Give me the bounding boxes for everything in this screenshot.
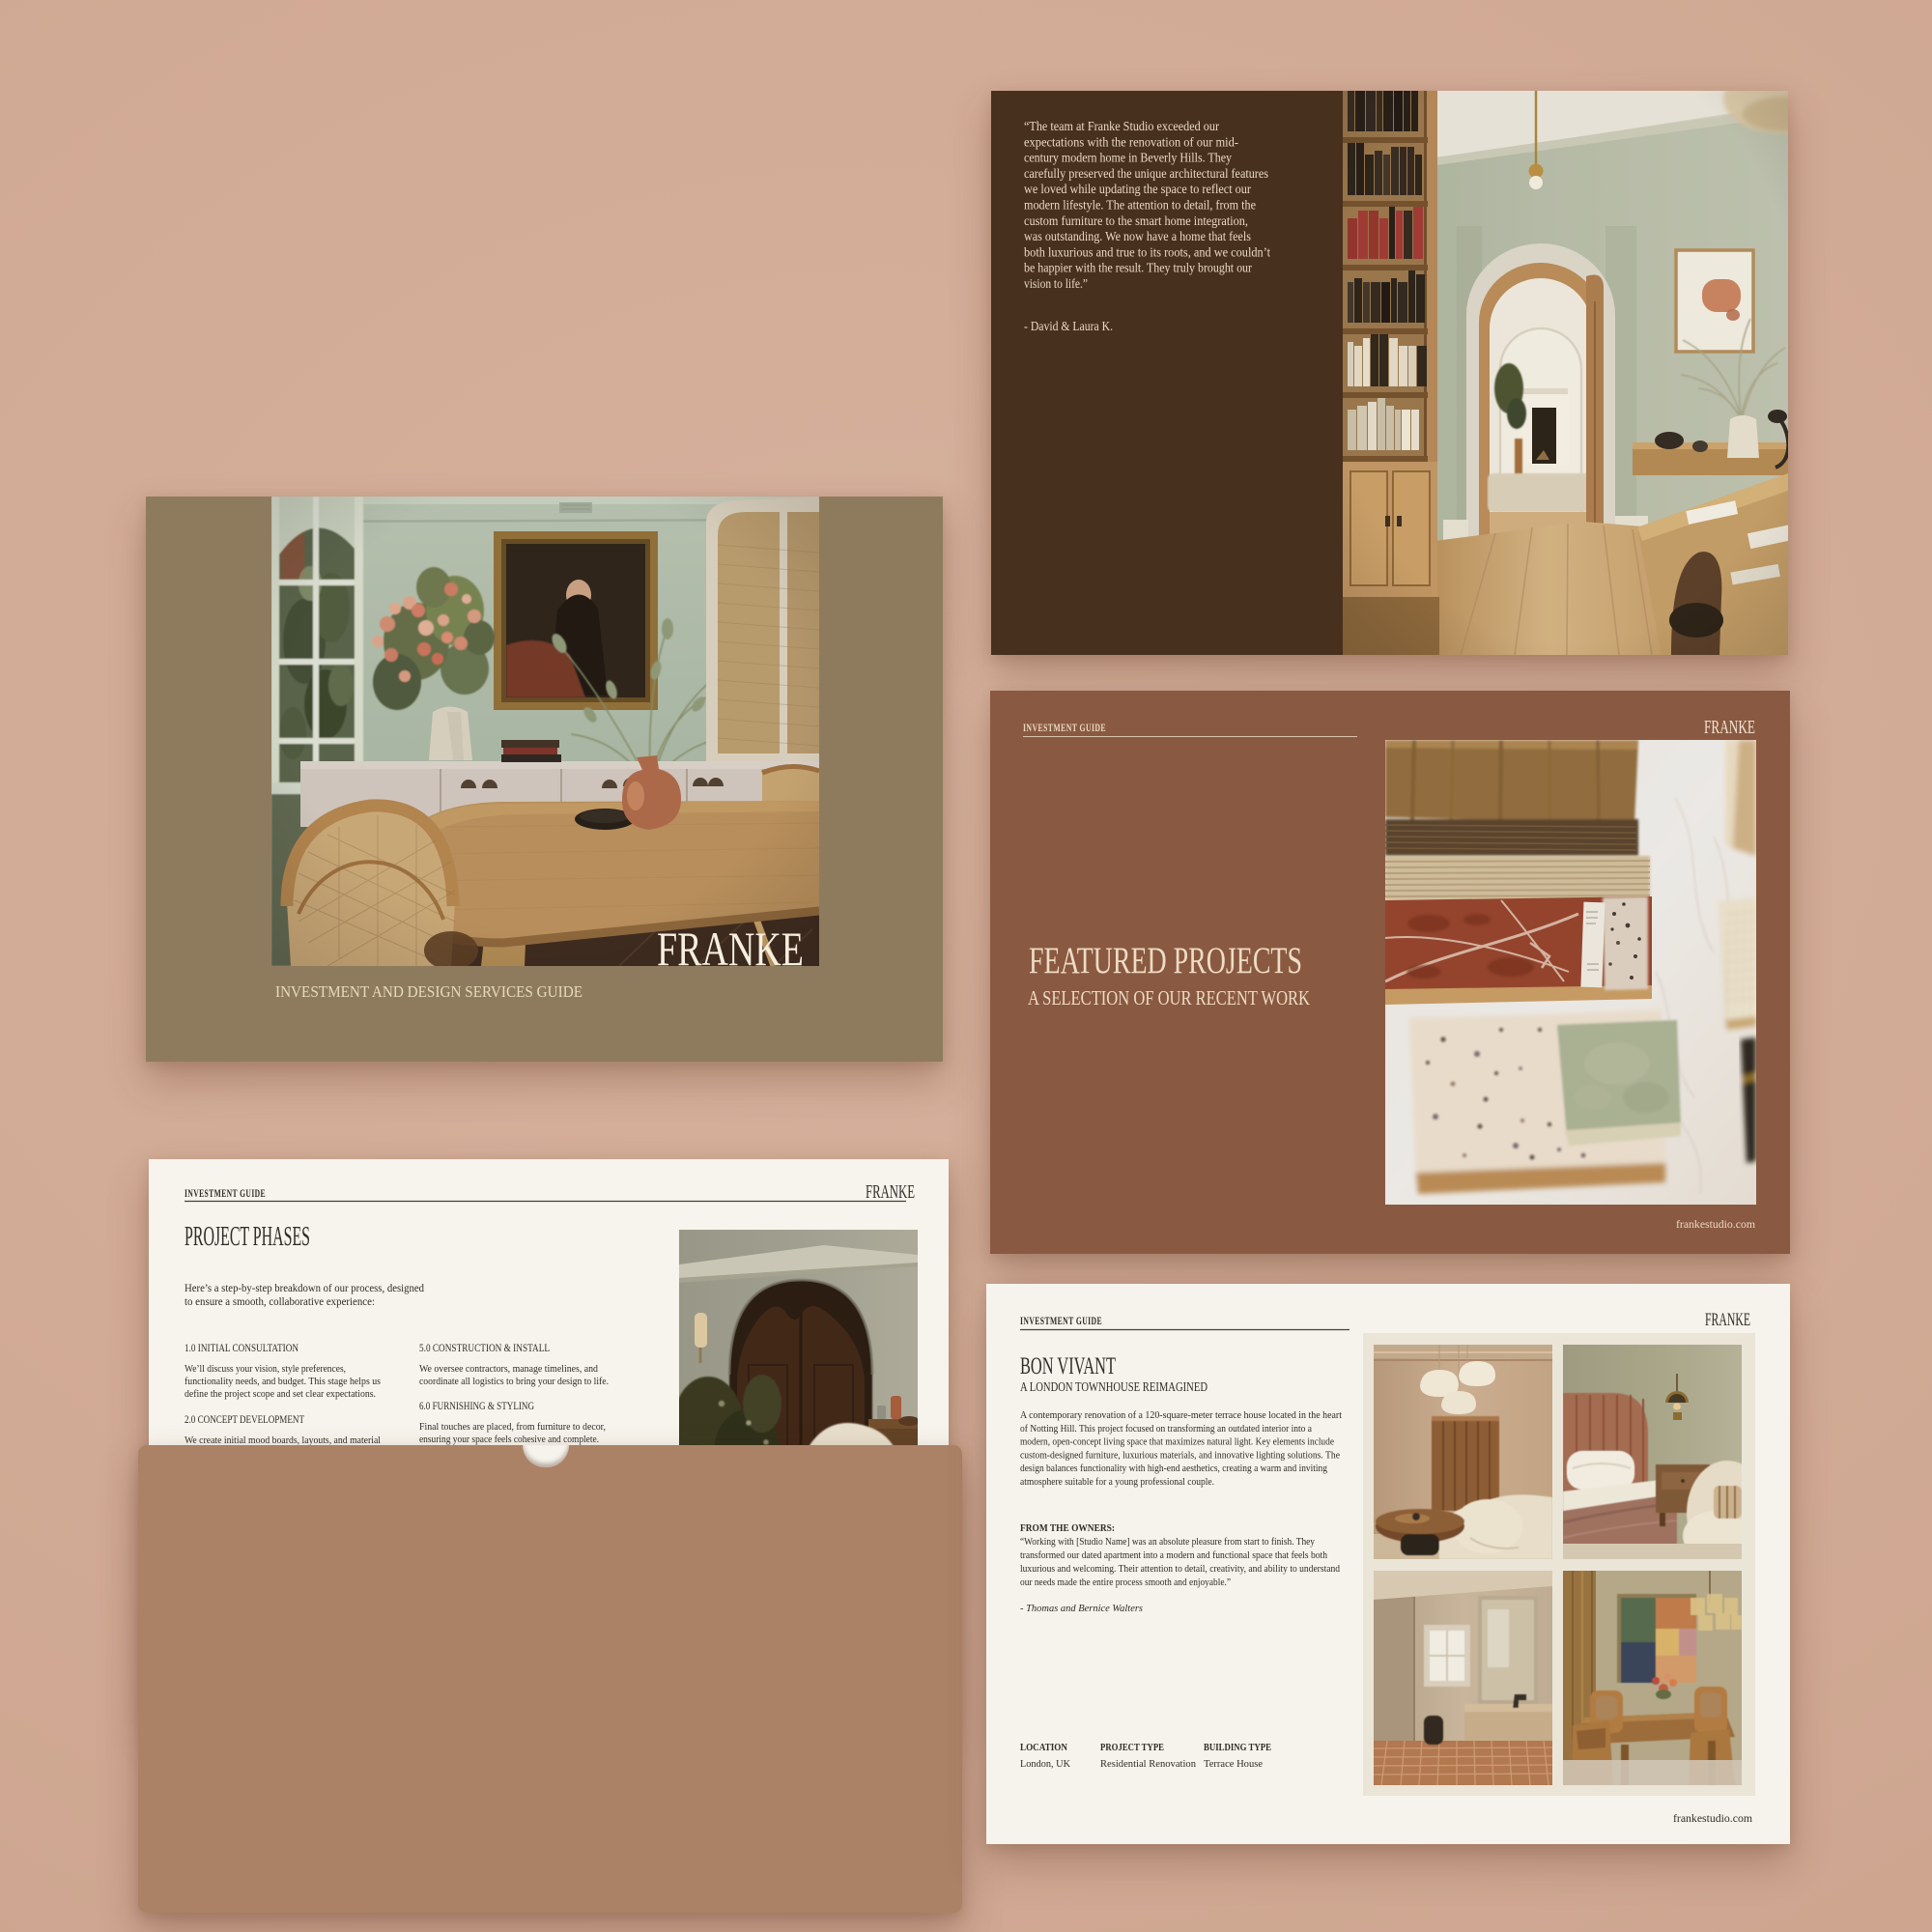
svg-text:was outstanding. We now have a: was outstanding. We now have a home that… xyxy=(1024,229,1251,243)
svg-text:modern lifestyle. The attentio: modern lifestyle. The attention to detai… xyxy=(1024,198,1256,213)
svg-text:both luxurious and true to its: both luxurious and true to its roots, an… xyxy=(1024,244,1270,259)
svg-text:We’ll discuss your vision, sty: We’ll discuss your vision, style prefere… xyxy=(185,1363,346,1375)
svg-text:FRANKE: FRANKE xyxy=(866,1182,915,1203)
svg-text:INVESTMENT GUIDE: INVESTMENT GUIDE xyxy=(1023,723,1106,734)
svg-text:1.0 INITIAL CONSULTATION: 1.0 INITIAL CONSULTATION xyxy=(185,1343,299,1354)
svg-text:ensuring your space feels cohe: ensuring your space feels cohesive and c… xyxy=(419,1434,599,1445)
svg-text:define the project scope and s: define the project scope and set clear e… xyxy=(185,1388,376,1400)
svg-text:6.0 FURNISHING & STYLING: 6.0 FURNISHING & STYLING xyxy=(419,1401,534,1412)
svg-text:our needs made the entire proc: our needs made the entire process smooth… xyxy=(1020,1577,1231,1588)
svg-text:be happier with the result. Th: be happier with the result. They truly b… xyxy=(1024,261,1252,275)
svg-text:- David & Laura K.: - David & Laura K. xyxy=(1024,319,1113,333)
svg-text:“Working with [Studio Name] wa: “Working with [Studio Name] was an absol… xyxy=(1020,1536,1315,1548)
svg-text:INVESTMENT AND DESIGN SERVICES: INVESTMENT AND DESIGN SERVICES GUIDE xyxy=(275,982,582,1001)
svg-text:FROM THE OWNERS:: FROM THE OWNERS: xyxy=(1020,1522,1115,1534)
svg-text:coordinate all logistics to br: coordinate all logistics to bring your d… xyxy=(419,1376,609,1387)
svg-text:functionality needs, and budge: functionality needs, and budget. This st… xyxy=(185,1376,381,1387)
svg-text:frankestudio.com: frankestudio.com xyxy=(1673,1813,1752,1825)
svg-text:expectations with the renovati: expectations with the renovation of our … xyxy=(1024,134,1238,149)
svg-text:custom furniture to the smart: custom furniture to the smart home integ… xyxy=(1024,213,1248,228)
svg-text:design balances functionality: design balances functionality with high-… xyxy=(1020,1463,1327,1474)
svg-text:A SELECTION OF OUR RECENT WORK: A SELECTION OF OUR RECENT WORK xyxy=(1028,986,1310,1009)
svg-text:modern, open-concept living sp: modern, open-concept living space that m… xyxy=(1020,1436,1334,1448)
svg-text:BON VIVANT: BON VIVANT xyxy=(1020,1353,1116,1379)
svg-text:Residential Renovation: Residential Renovation xyxy=(1100,1758,1196,1770)
svg-text:PROJECT TYPE: PROJECT TYPE xyxy=(1100,1743,1164,1753)
svg-text:FRANKE: FRANKE xyxy=(657,922,804,976)
svg-text:BUILDING TYPE: BUILDING TYPE xyxy=(1204,1743,1271,1753)
svg-text:INVESTMENT GUIDE: INVESTMENT GUIDE xyxy=(1020,1316,1102,1327)
svg-text:FEATURED PROJECTS: FEATURED PROJECTS xyxy=(1029,940,1302,981)
svg-text:5.0 CONSTRUCTION & INSTALL: 5.0 CONSTRUCTION & INSTALL xyxy=(419,1343,550,1354)
svg-text:custom-designed furniture, lux: custom-designed furniture, luxurious mat… xyxy=(1020,1449,1340,1461)
svg-text:PROJECT PHASES: PROJECT PHASES xyxy=(185,1222,310,1252)
svg-text:Final touches are placed, from: Final touches are placed, from furniture… xyxy=(419,1421,606,1433)
svg-text:“The team at Franke Studio exc: “The team at Franke Studio exceeded our xyxy=(1024,119,1219,133)
svg-text:A contemporary renovation of a: A contemporary renovation of a 120-squar… xyxy=(1020,1409,1342,1421)
svg-text:carefully preserved the unique: carefully preserved the unique architect… xyxy=(1024,166,1268,181)
svg-text:- Thomas and Bernice Walters: - Thomas and Bernice Walters xyxy=(1020,1603,1143,1614)
svg-text:Terrace House: Terrace House xyxy=(1204,1758,1263,1770)
svg-text:Here’s a step-by-step breakdow: Here’s a step-by-step breakdown of our p… xyxy=(185,1283,424,1294)
svg-text:luxurious and welcoming. Their: luxurious and welcoming. Their attention… xyxy=(1020,1563,1340,1575)
svg-text:atmosphere suitable for a youn: atmosphere suitable for a young professi… xyxy=(1020,1476,1214,1488)
svg-text:A LONDON TOWNHOUSE REIMAGINED: A LONDON TOWNHOUSE REIMAGINED xyxy=(1020,1380,1207,1395)
svg-text:LOCATION: LOCATION xyxy=(1020,1743,1067,1753)
svg-text:London, UK: London, UK xyxy=(1020,1758,1070,1770)
svg-text:frankestudio.com: frankestudio.com xyxy=(1676,1219,1755,1231)
svg-text:We oversee contractors, manage: We oversee contractors, manage timelines… xyxy=(419,1363,598,1375)
svg-text:INVESTMENT GUIDE: INVESTMENT GUIDE xyxy=(185,1188,266,1200)
svg-text:we loved while updating the sp: we loved while updating the space to ref… xyxy=(1024,182,1251,196)
svg-text:century modern home in Beverly: century modern home in Beverly Hills. Th… xyxy=(1024,151,1232,165)
svg-text:FRANKE: FRANKE xyxy=(1704,718,1755,738)
svg-text:of Notting Hill. This project: of Notting Hill. This project focused on… xyxy=(1020,1423,1312,1435)
svg-text:FRANKE: FRANKE xyxy=(1705,1310,1750,1330)
svg-text:transformed our dated apartmen: transformed our dated apartment into a m… xyxy=(1020,1549,1327,1561)
svg-text:vision to life.”: vision to life.” xyxy=(1024,276,1088,291)
svg-text:to ensure a smooth, collaborat: to ensure a smooth, collaborative experi… xyxy=(185,1296,375,1308)
svg-text:2.0 CONCEPT DEVELOPMENT: 2.0 CONCEPT DEVELOPMENT xyxy=(185,1414,304,1426)
